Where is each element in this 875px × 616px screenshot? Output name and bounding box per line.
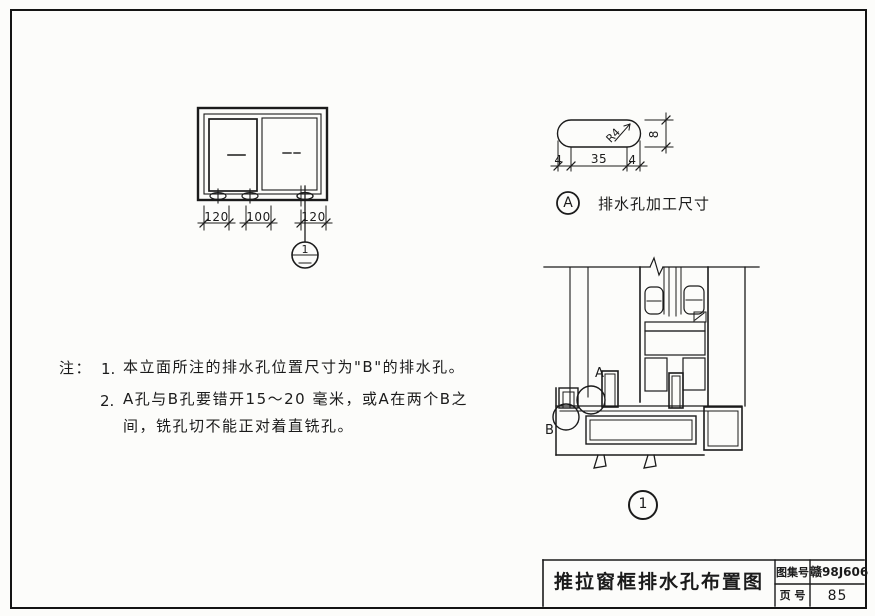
elevation-dim-left: 120 [198, 210, 235, 224]
detail-a-caption: 排水孔加工尺寸 [598, 195, 710, 213]
note-2-number: 2. [100, 392, 114, 410]
notes-prefix: 注： [59, 359, 92, 377]
detail-a-dim-right: 4 [626, 153, 639, 167]
note-1-text: 本立面所注的排水孔位置尺寸为"B"的排水孔。 [123, 358, 465, 376]
detail-a-height-dim: 8 [647, 130, 661, 138]
atlas-number-value: 赣98J606 [810, 565, 865, 579]
elevation-dim-middle: 100 [240, 210, 277, 224]
note-1-number: 1. [101, 360, 115, 378]
section-callout-number: 1 [633, 496, 653, 513]
note-2-text-line1: A孔与B孔要错开15～20 毫米，或A在两个B之 [123, 390, 468, 408]
elevation-callout-number: 1 [297, 243, 313, 256]
atlas-number-label: 图集号 [776, 566, 809, 579]
page-number-label: 页 号 [776, 589, 809, 602]
detail-a-bubble-letter: A [558, 195, 578, 212]
section-hole-a-label: A [595, 366, 604, 382]
page-number-value: 85 [810, 588, 865, 605]
drawing-title: 推拉窗框排水孔布置图 [545, 571, 773, 594]
elevation-dim-right: 120 [295, 210, 332, 224]
detail-a-dim-middle: 35 [589, 152, 609, 166]
frame-section-figure [544, 258, 759, 519]
section-hole-b-label: B [545, 423, 554, 439]
note-2-text-line2: 间，铣孔切不能正对着直铣孔。 [123, 417, 354, 435]
detail-a-dim-left: 4 [552, 153, 565, 167]
drawing-sheet: 120 100 120 1 4 35 4 8 R4 A 排水孔加工尺寸 A B … [0, 0, 875, 616]
drawing-linework [0, 0, 875, 616]
